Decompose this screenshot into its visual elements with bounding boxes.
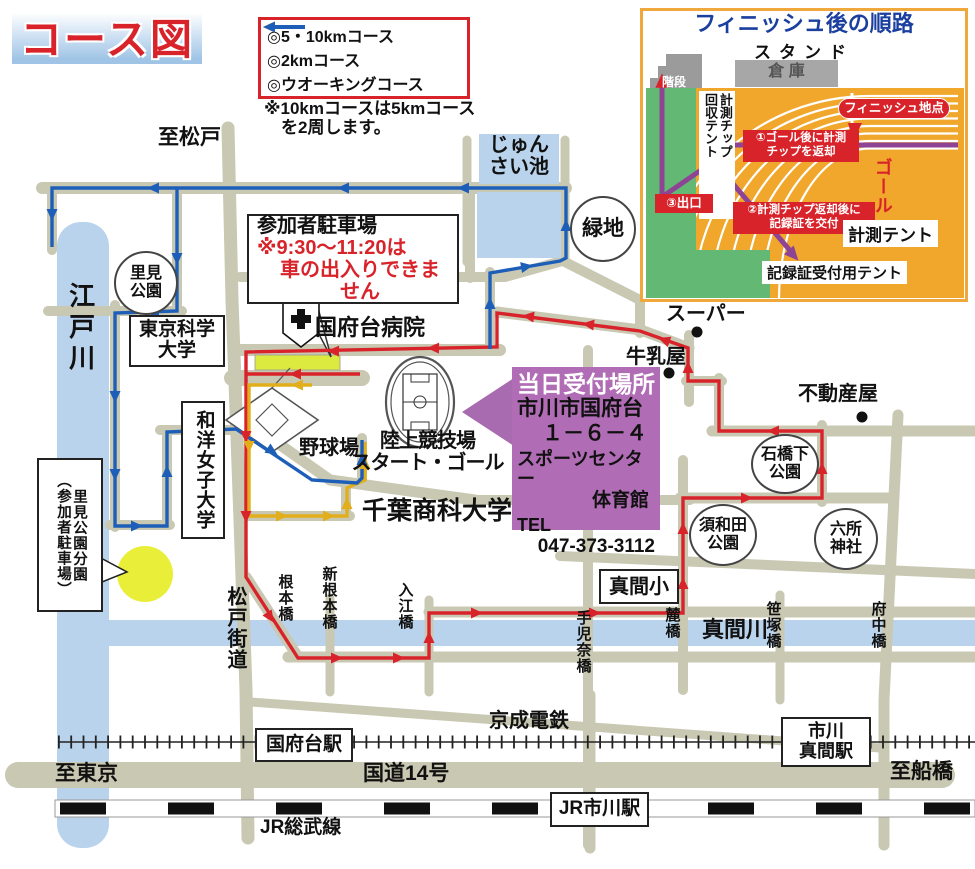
inset-finish-point-label: フィニッシュ地点: [838, 98, 950, 119]
mama-elementary-label: 真間小: [599, 569, 679, 604]
suwada-park-label: 須和田 公園: [689, 504, 757, 566]
inset-cert-tent-label: 記録証受付用テント: [762, 261, 907, 284]
reception-title: 当日受付場所: [517, 371, 655, 397]
edogawa-label: 江戸川: [66, 282, 95, 375]
satomi-park-label: 里見 公園: [114, 251, 178, 315]
reception-tel: 047-373-3112: [517, 536, 655, 558]
parking-note-title: 参加者駐車場: [257, 215, 377, 237]
univ-science-label: 東京科学 大学: [129, 315, 225, 367]
inset-stairs-label: 階段: [662, 76, 686, 89]
legend-label: ◎2kmコース: [267, 47, 360, 71]
legend-note: ※10kmコースは5kmコース を2周します。: [264, 100, 475, 137]
reception-info-box: 当日受付場所 市川市国府台 １－６－４ スポーツセンター 体育館 TEL 047…: [512, 367, 660, 530]
reception-address3: スポーツセンター: [517, 449, 655, 490]
satomi-branch-park: [117, 546, 173, 602]
hospital-icon: [283, 303, 319, 347]
bridge-fuchu-label: 府中橋: [869, 601, 886, 649]
page-title: コース図: [12, 8, 202, 64]
milk-shop-label: 牛乳屋: [626, 346, 686, 368]
pond-junsai: [477, 192, 561, 258]
to-funabashi-label: 至船橋: [890, 760, 953, 783]
bridge-tekona-label: 手児奈橋: [574, 610, 591, 674]
reception-tel-label: TEL: [517, 515, 655, 536]
ichikawamama-station-label: 市川 真間駅: [781, 717, 871, 767]
inset-warehouse-label: 倉 庫: [735, 63, 838, 81]
jr-sobu-label: JR総武線: [260, 818, 341, 839]
hospital-label: 国府台病院: [315, 316, 425, 340]
ishibashi-park-label: 石橋下 公園: [751, 434, 819, 494]
reception-address2: １－６－４: [517, 422, 655, 446]
inset-step1-label: ①ゴール後に計測 チップを返却: [743, 130, 859, 162]
legend-row-walking: ◎ウオーキングコース: [267, 71, 461, 95]
reception-address1: 市川市国府台: [517, 397, 655, 421]
parking-strip: [255, 355, 340, 370]
stadium-label: 陸上競技場 スタート・ゴール: [345, 430, 510, 474]
green-space-label: 緑地: [570, 196, 636, 262]
reception-address4: 体育館: [517, 490, 655, 512]
matsudo-road-label: 松戸街道: [224, 586, 246, 670]
konodai-station-label: 国府台駅: [255, 728, 353, 762]
bridge-sasazuka-label: 笹塚橋: [764, 601, 781, 649]
inset-step3-label: ③出口: [655, 194, 713, 213]
inset-measure-tent-label: 計測テント: [843, 220, 938, 247]
route14-label: 国道14号: [363, 762, 449, 785]
legend-label: ◎ウオーキングコース: [267, 71, 424, 95]
jr-ichikawa-station-label: JR市川駅: [550, 792, 649, 827]
course-map-page: コース図 ◎5・10kmコース ◎2kmコース ◎ウオーキングコース ※10km…: [0, 0, 975, 869]
inset-stand-label: スタンド: [641, 44, 967, 63]
to-matsudo-label: 至松戸: [158, 126, 221, 149]
satomi-branch-label: 里見公園分園 （参加者駐車場）: [37, 458, 103, 612]
to-tokyo-label: 至東京: [55, 762, 118, 785]
univ-wayo-label: 和洋女子大学: [181, 401, 225, 539]
jr-line: [55, 800, 975, 817]
realtor-label: 不動産屋: [798, 383, 878, 405]
legend-row-2km: ◎2kmコース: [267, 47, 461, 71]
parking-note-warning: 車の出入りできません: [257, 259, 449, 303]
chiba-univ-label: 千葉商科大学: [362, 498, 512, 526]
bridge-nemoto-label: 根本橋: [276, 574, 293, 622]
blue-arrow-icon: [261, 20, 307, 34]
inset-goal-label: ゴール: [872, 158, 892, 215]
bridge-irie-label: 入江橋: [396, 582, 413, 630]
bridge-fumoto-label: 麓橋: [663, 607, 680, 639]
keisei-label: 京成電鉄: [489, 710, 569, 732]
bridge-shin-nemoto-label: 新根本橋: [320, 566, 337, 630]
course-legend: ◎5・10kmコース ◎2kmコース ◎ウオーキングコース: [258, 17, 470, 99]
parking-note-time: ※9:30～11:20は: [257, 237, 407, 259]
junsai-pond-label: じゅん さい池: [479, 134, 559, 184]
mama-river-label: 真間川: [702, 618, 768, 642]
inset-title: フィニッシュ後の順路: [641, 12, 967, 36]
super-label: スーパー: [666, 303, 746, 325]
parking-note-box: 参加者駐車場 ※9:30～11:20は 車の出入りできません: [247, 214, 459, 304]
rokusho-shrine-label: 六所 神社: [814, 508, 878, 570]
